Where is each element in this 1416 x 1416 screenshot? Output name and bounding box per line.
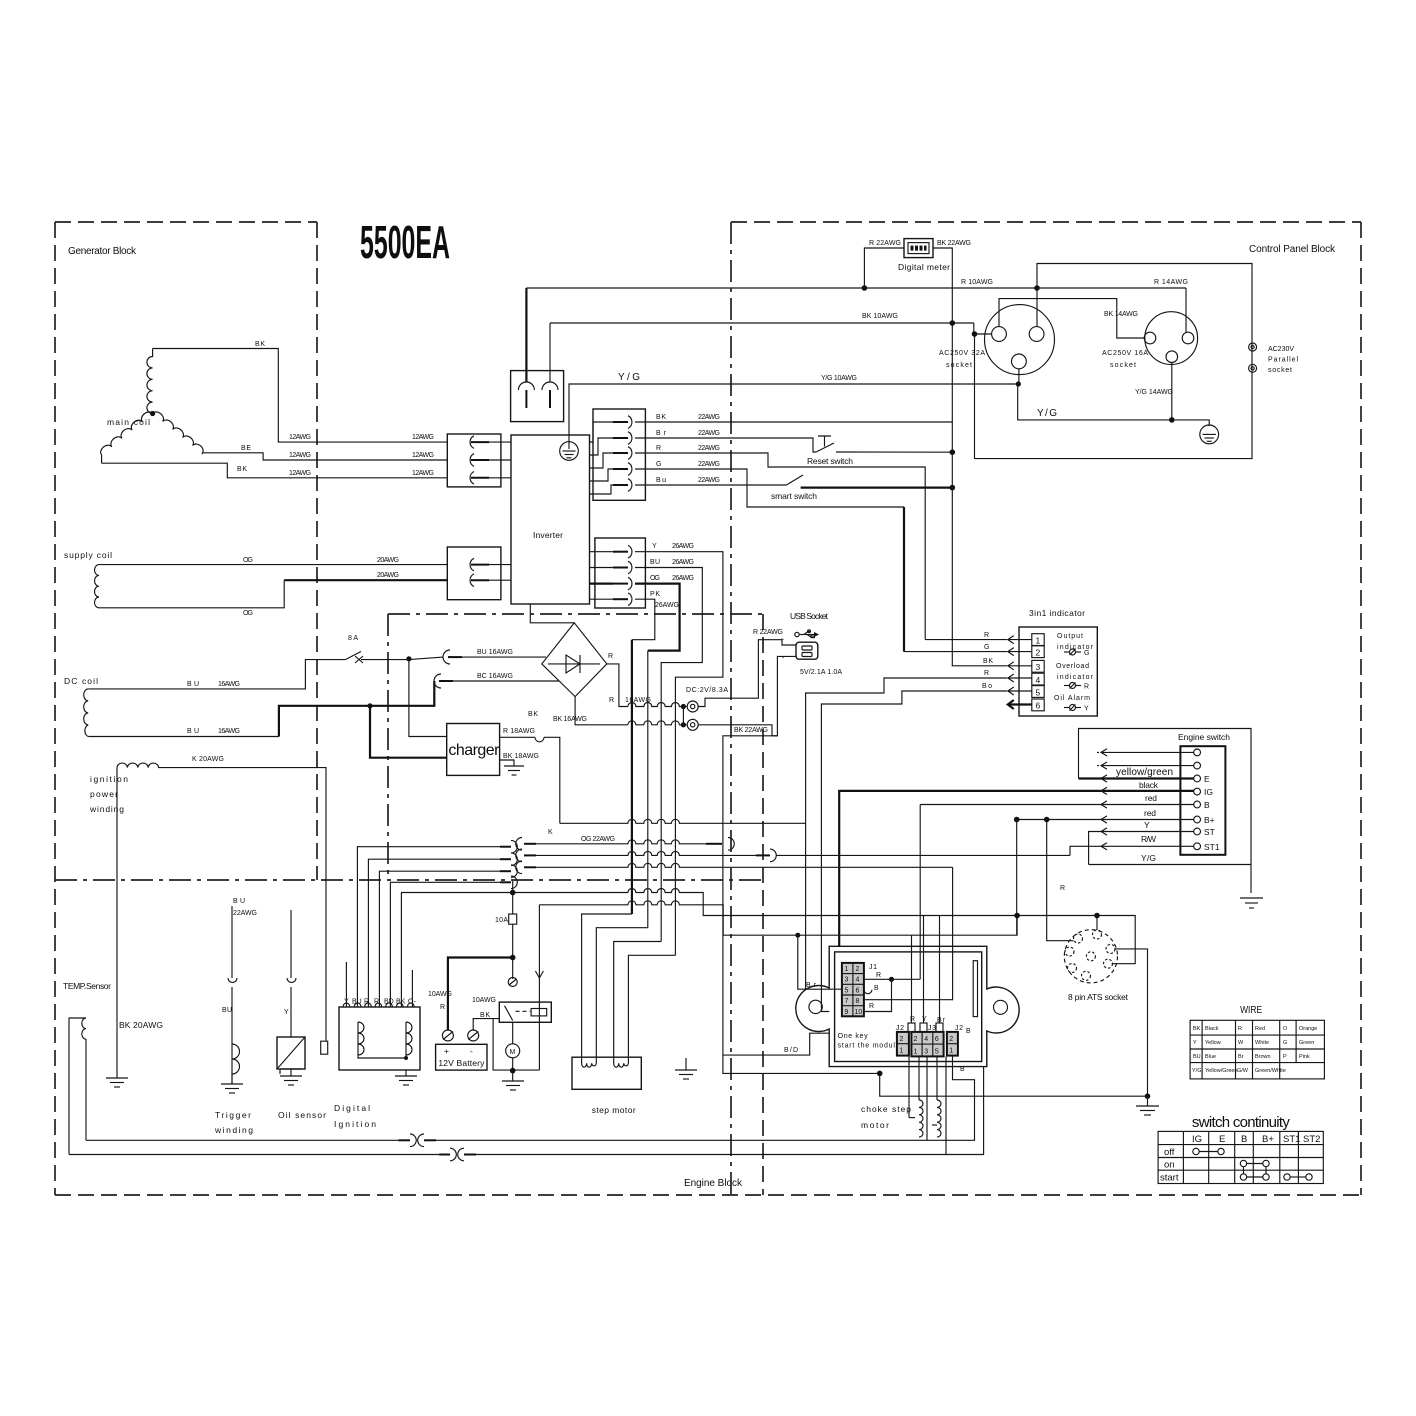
svg-text:OG: OG bbox=[650, 575, 660, 582]
svg-text:3: 3 bbox=[1036, 662, 1041, 672]
svg-text:Y: Y bbox=[284, 1009, 289, 1016]
svg-text:B: B bbox=[966, 1028, 971, 1035]
svg-text:R: R bbox=[910, 1016, 915, 1023]
svg-text:G: G bbox=[984, 644, 989, 651]
svg-text:Y: Y bbox=[1084, 706, 1089, 713]
svg-text:power: power bbox=[90, 789, 118, 799]
svg-text:BK: BK bbox=[1193, 1026, 1201, 1032]
svg-text:main coil: main coil bbox=[107, 417, 150, 427]
svg-text:OG: OG bbox=[243, 610, 253, 617]
svg-text:J1: J1 bbox=[869, 964, 877, 971]
svg-text:W: W bbox=[1238, 1040, 1244, 1046]
svg-text:8A: 8A bbox=[348, 635, 358, 642]
svg-text:G: G bbox=[656, 461, 661, 468]
svg-text:B: B bbox=[1241, 1134, 1247, 1145]
svg-text:winding: winding bbox=[89, 804, 124, 814]
svg-text:start: start bbox=[1160, 1173, 1179, 1184]
svg-text:socket: socket bbox=[1110, 362, 1136, 369]
svg-text:P: P bbox=[1283, 1054, 1287, 1060]
svg-text:White: White bbox=[1255, 1040, 1269, 1046]
svg-text:TEMP.Sensor: TEMP.Sensor bbox=[63, 981, 111, 991]
svg-text:Oil sensor: Oil sensor bbox=[278, 1110, 326, 1120]
svg-text:R 14AWG: R 14AWG bbox=[1154, 279, 1188, 286]
svg-text:J2: J2 bbox=[896, 1025, 904, 1032]
svg-text:BU 16AWG: BU 16AWG bbox=[477, 649, 513, 656]
svg-text:step motor: step motor bbox=[592, 1105, 636, 1115]
svg-text:26AWG: 26AWG bbox=[655, 602, 679, 609]
svg-text:26AWG: 26AWG bbox=[672, 543, 694, 550]
svg-text:One key: One key bbox=[838, 1033, 869, 1040]
svg-text:Digital: Digital bbox=[334, 1103, 370, 1113]
svg-text:5: 5 bbox=[845, 987, 849, 994]
svg-text:1: 1 bbox=[1036, 636, 1041, 646]
svg-text:1: 1 bbox=[914, 1049, 918, 1056]
svg-text:R: R bbox=[608, 653, 613, 660]
svg-text:Pink: Pink bbox=[1299, 1054, 1310, 1060]
svg-text:M: M bbox=[510, 1049, 516, 1056]
svg-text:Y/G: Y/G bbox=[1141, 853, 1156, 863]
svg-text:2: 2 bbox=[900, 1036, 904, 1043]
svg-text:PK: PK bbox=[650, 591, 660, 598]
svg-text:Brown: Brown bbox=[1255, 1054, 1271, 1060]
svg-text:Br: Br bbox=[937, 1017, 946, 1024]
svg-text:DC:2V/8.3A: DC:2V/8.3A bbox=[686, 687, 728, 694]
svg-text:IG: IG bbox=[1192, 1134, 1202, 1145]
svg-text:16AWG: 16AWG bbox=[625, 697, 651, 704]
svg-text:socket: socket bbox=[1268, 367, 1292, 374]
svg-text:ST2: ST2 bbox=[1303, 1134, 1320, 1145]
svg-text:R: R bbox=[656, 445, 661, 452]
svg-text:1: 1 bbox=[845, 966, 849, 973]
svg-text:4: 4 bbox=[924, 1036, 928, 1043]
svg-text:12AWG: 12AWG bbox=[289, 470, 311, 477]
svg-text:BK 22AWG: BK 22AWG bbox=[937, 240, 971, 247]
svg-text:2: 2 bbox=[949, 1036, 953, 1043]
svg-text:E: E bbox=[1204, 774, 1210, 784]
svg-text:BK: BK bbox=[656, 414, 666, 421]
svg-text:8: 8 bbox=[856, 998, 860, 1005]
svg-text:Yellow: Yellow bbox=[1205, 1040, 1221, 1046]
svg-text:+: + bbox=[780, 637, 784, 644]
svg-text:Oil Alarm: Oil Alarm bbox=[1054, 695, 1090, 702]
svg-text:BK 20AWG: BK 20AWG bbox=[119, 1020, 163, 1030]
svg-text:G: G bbox=[1084, 650, 1089, 657]
svg-text:R: R bbox=[1238, 1026, 1242, 1032]
svg-text:BU: BU bbox=[187, 728, 199, 735]
svg-text:R: R bbox=[984, 632, 989, 639]
svg-text:on: on bbox=[1164, 1160, 1175, 1171]
svg-text:socket: socket bbox=[946, 362, 972, 369]
svg-text:OG: OG bbox=[243, 557, 253, 564]
svg-text:Overload: Overload bbox=[1056, 663, 1089, 670]
svg-text:Inverter: Inverter bbox=[533, 530, 563, 540]
svg-text:4: 4 bbox=[856, 977, 860, 984]
svg-text:Green/White: Green/White bbox=[1255, 1068, 1286, 1074]
svg-text:1: 1 bbox=[900, 1048, 904, 1055]
svg-text:22AWG: 22AWG bbox=[698, 461, 720, 468]
svg-text:R 22AWG: R 22AWG bbox=[869, 240, 901, 247]
svg-text:charger: charger bbox=[448, 742, 500, 759]
svg-text:5: 5 bbox=[935, 1049, 939, 1056]
svg-text:IG: IG bbox=[1204, 787, 1213, 797]
svg-text:E: E bbox=[1219, 1134, 1225, 1145]
svg-text:Blue: Blue bbox=[1205, 1054, 1216, 1060]
svg-text:22AWG: 22AWG bbox=[233, 910, 257, 917]
svg-text:Y: Y bbox=[652, 543, 657, 550]
svg-text:J3: J3 bbox=[928, 1025, 936, 1032]
svg-text:Orange: Orange bbox=[1299, 1026, 1317, 1032]
svg-text:BU: BU bbox=[187, 681, 199, 688]
svg-text:BK: BK bbox=[528, 711, 538, 718]
svg-text:choke step: choke step bbox=[861, 1104, 911, 1114]
svg-text:K: K bbox=[548, 829, 553, 836]
svg-text:winding: winding bbox=[214, 1125, 253, 1135]
svg-text:Green: Green bbox=[1299, 1040, 1314, 1046]
svg-text:G/W: G/W bbox=[1237, 1068, 1249, 1074]
svg-text:R: R bbox=[1060, 885, 1065, 892]
svg-text:22AWG: 22AWG bbox=[698, 477, 720, 484]
svg-text:12AWG: 12AWG bbox=[412, 470, 434, 477]
svg-text:BK 22AWG: BK 22AWG bbox=[734, 727, 768, 734]
svg-text:smart switch: smart switch bbox=[771, 491, 817, 501]
svg-text:yellow/green: yellow/green bbox=[1116, 767, 1173, 778]
svg-text:5: 5 bbox=[1036, 687, 1041, 697]
svg-text:12AWG: 12AWG bbox=[289, 452, 311, 459]
svg-text:3in1 indicator: 3in1 indicator bbox=[1029, 608, 1085, 618]
svg-text:R 10AWG: R 10AWG bbox=[961, 279, 993, 286]
svg-text:ST: ST bbox=[1204, 827, 1215, 837]
svg-text:Parallel: Parallel bbox=[1268, 357, 1298, 364]
svg-text:12AWG: 12AWG bbox=[289, 434, 311, 441]
svg-text:R: R bbox=[374, 999, 379, 1006]
svg-text:OG 22AWG: OG 22AWG bbox=[581, 836, 615, 843]
svg-text:10AWG: 10AWG bbox=[472, 997, 496, 1004]
svg-text:2: 2 bbox=[914, 1036, 918, 1043]
svg-text:indicator: indicator bbox=[1057, 674, 1094, 681]
svg-text:ST1: ST1 bbox=[1204, 842, 1220, 852]
svg-text:supply coil: supply coil bbox=[64, 550, 112, 560]
svg-text:4: 4 bbox=[1036, 675, 1041, 685]
svg-text:10A: 10A bbox=[495, 917, 508, 924]
svg-text:J2: J2 bbox=[955, 1025, 963, 1032]
svg-text:B: B bbox=[1204, 800, 1210, 810]
svg-text:Y/G: Y/G bbox=[1192, 1068, 1201, 1074]
svg-text:6: 6 bbox=[1036, 701, 1041, 711]
svg-text:off: off bbox=[1164, 1147, 1175, 1158]
svg-text:12V Battery: 12V Battery bbox=[438, 1058, 485, 1068]
svg-text:5500EA: 5500EA bbox=[360, 216, 450, 268]
svg-text:BC 16AWG: BC 16AWG bbox=[477, 673, 513, 680]
svg-text:R: R bbox=[609, 697, 614, 704]
svg-text:1: 1 bbox=[949, 1048, 953, 1055]
svg-text:Control Panel Block: Control Panel Block bbox=[1249, 244, 1336, 255]
svg-text:12AWG: 12AWG bbox=[412, 452, 434, 459]
svg-text:2: 2 bbox=[856, 966, 860, 973]
svg-text:BK: BK bbox=[983, 658, 993, 665]
svg-text:3: 3 bbox=[924, 1049, 928, 1056]
svg-text:BK: BK bbox=[237, 466, 247, 473]
svg-text:R: R bbox=[876, 972, 881, 979]
svg-text:2: 2 bbox=[1036, 648, 1041, 658]
svg-text:BU: BU bbox=[1193, 1054, 1201, 1060]
svg-text:BU: BU bbox=[650, 559, 660, 566]
svg-text:Black: Black bbox=[1205, 1026, 1219, 1032]
svg-text:R: R bbox=[869, 1003, 874, 1010]
svg-text:Y: Y bbox=[922, 1016, 927, 1023]
svg-text:Y/G: Y/G bbox=[618, 372, 640, 383]
svg-text:Y/G: Y/G bbox=[1037, 408, 1057, 419]
svg-text:Engine switch: Engine switch bbox=[1178, 732, 1230, 742]
svg-text:+: + bbox=[444, 1046, 449, 1056]
svg-text:K 20AWG: K 20AWG bbox=[192, 756, 224, 763]
svg-text:-: - bbox=[470, 1046, 473, 1056]
svg-text:B+: B+ bbox=[1262, 1134, 1274, 1145]
svg-text:20AWG: 20AWG bbox=[377, 557, 399, 564]
svg-text:BU: BU bbox=[222, 1007, 232, 1014]
svg-text:6: 6 bbox=[935, 1036, 939, 1043]
svg-text:B: B bbox=[960, 1066, 965, 1073]
svg-text:R: R bbox=[440, 1004, 445, 1011]
svg-text:R: R bbox=[984, 670, 989, 677]
svg-text:8 pin ATS socket: 8 pin ATS socket bbox=[1068, 992, 1129, 1002]
svg-text:Engine Block: Engine Block bbox=[684, 1178, 743, 1189]
svg-text:Y: Y bbox=[1144, 820, 1150, 830]
svg-text:B+: B+ bbox=[1204, 815, 1215, 825]
svg-text:start the module: start the module bbox=[838, 1043, 900, 1050]
svg-text:7: 7 bbox=[845, 998, 849, 1005]
svg-text:BU: BU bbox=[233, 898, 245, 905]
svg-text:BK 16AWG: BK 16AWG bbox=[553, 716, 587, 723]
svg-text:5V/2.1A 1.0A: 5V/2.1A 1.0A bbox=[800, 669, 842, 676]
svg-text:R 18AWG: R 18AWG bbox=[503, 728, 535, 735]
svg-text:Y: Y bbox=[1193, 1040, 1197, 1046]
svg-text:DC coil: DC coil bbox=[64, 676, 98, 686]
svg-text:G: G bbox=[1283, 1040, 1287, 1046]
svg-text:20AWG: 20AWG bbox=[377, 572, 399, 579]
svg-text:22AWG: 22AWG bbox=[698, 430, 720, 437]
svg-text:26AWG: 26AWG bbox=[672, 575, 694, 582]
svg-text:red: red bbox=[1145, 793, 1157, 803]
svg-text:BK 18AWG: BK 18AWG bbox=[503, 753, 539, 760]
svg-text:22AWG: 22AWG bbox=[698, 445, 720, 452]
svg-text:Digital meter: Digital meter bbox=[898, 262, 950, 272]
svg-text:10AWG: 10AWG bbox=[428, 991, 452, 998]
svg-text:Red: Red bbox=[1255, 1026, 1265, 1032]
svg-text:26AWG: 26AWG bbox=[672, 559, 694, 566]
svg-text:R/W: R/W bbox=[1141, 834, 1156, 844]
svg-text:Generator Block: Generator Block bbox=[68, 246, 137, 257]
svg-text:6: 6 bbox=[856, 987, 860, 994]
svg-text:black: black bbox=[1139, 780, 1159, 790]
svg-text:BK 14AWG: BK 14AWG bbox=[1104, 311, 1138, 318]
svg-text:BK: BK bbox=[255, 341, 265, 348]
svg-text:9: 9 bbox=[845, 1009, 849, 1016]
svg-text:3: 3 bbox=[845, 977, 849, 984]
svg-text:12AWG: 12AWG bbox=[412, 434, 434, 441]
svg-text:Output: Output bbox=[1057, 633, 1083, 640]
svg-text:10: 10 bbox=[855, 1009, 863, 1016]
svg-text:AC230V: AC230V bbox=[1268, 346, 1294, 353]
svg-text:switch continuity: switch continuity bbox=[1192, 1114, 1291, 1131]
svg-text:Br: Br bbox=[1238, 1054, 1244, 1060]
svg-text:USB Socket: USB Socket bbox=[790, 611, 829, 621]
svg-text:16AWG: 16AWG bbox=[218, 681, 240, 688]
svg-text:O: O bbox=[1283, 1026, 1288, 1032]
svg-text:WIRE: WIRE bbox=[1240, 1005, 1262, 1016]
svg-text:BK: BK bbox=[480, 1012, 490, 1019]
svg-text:16AWG: 16AWG bbox=[218, 728, 240, 735]
svg-text:Y/G 10AWG: Y/G 10AWG bbox=[821, 375, 857, 382]
svg-text:22AWG: 22AWG bbox=[698, 414, 720, 421]
svg-text:ST1: ST1 bbox=[1283, 1134, 1300, 1145]
svg-text:AC250V 16A: AC250V 16A bbox=[1102, 350, 1148, 357]
svg-text:BE: BE bbox=[241, 445, 251, 452]
svg-text:B: B bbox=[874, 985, 879, 992]
svg-text:Reset switch: Reset switch bbox=[807, 456, 853, 466]
svg-text:red: red bbox=[1144, 808, 1156, 818]
svg-text:ignition: ignition bbox=[90, 774, 128, 784]
svg-text:AC250V 32A: AC250V 32A bbox=[939, 350, 985, 357]
svg-text:Y/G 14AWG: Y/G 14AWG bbox=[1135, 389, 1173, 396]
svg-text:B/D: B/D bbox=[784, 1047, 798, 1054]
svg-text:R 22AWG: R 22AWG bbox=[753, 629, 783, 636]
svg-text:Yellow/Green: Yellow/Green bbox=[1205, 1068, 1238, 1074]
svg-text:R: R bbox=[1084, 684, 1089, 691]
svg-text:BK 10AWG: BK 10AWG bbox=[862, 313, 898, 320]
